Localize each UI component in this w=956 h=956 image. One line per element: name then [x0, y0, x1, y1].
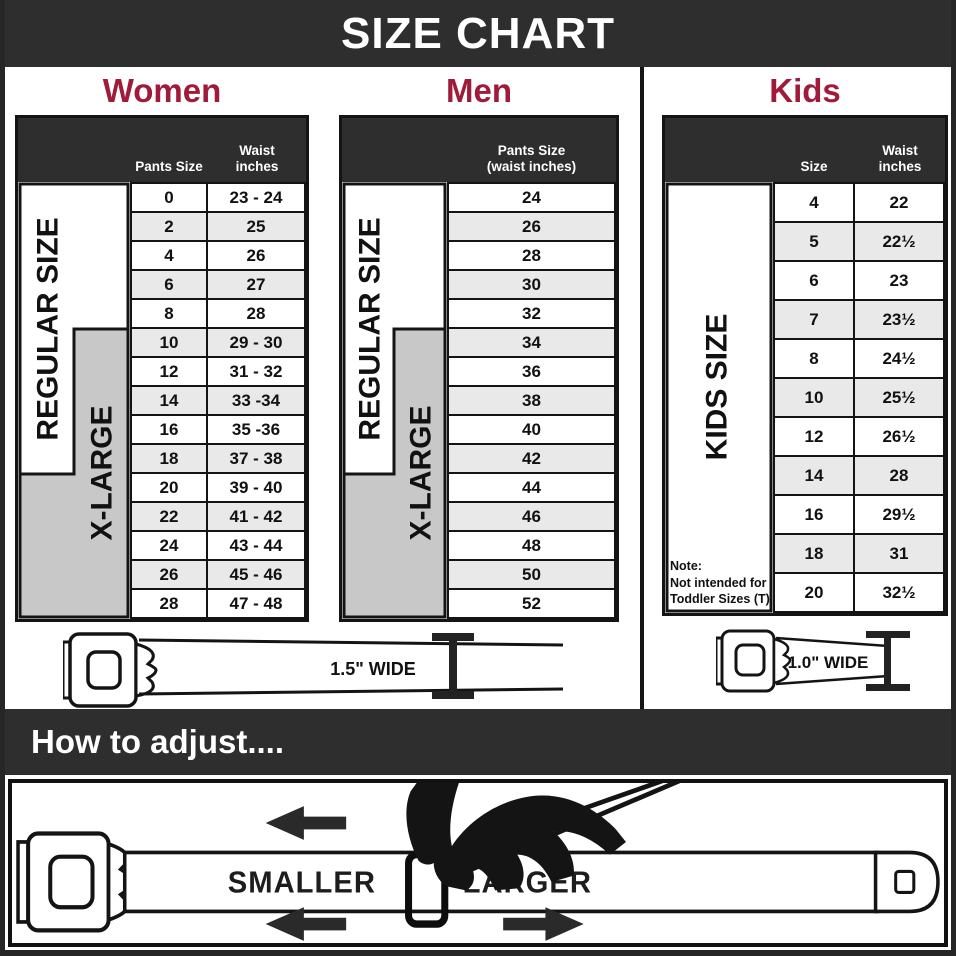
size-cell: 28: [130, 588, 208, 619]
waist-cell: 37 - 38: [206, 443, 306, 474]
women-fit-labels: REGULAR SIZE X-LARGE: [18, 182, 130, 619]
size-cell: 24: [130, 530, 208, 561]
table-row: 28: [447, 240, 616, 271]
size-cell: 16: [130, 414, 208, 445]
belt-buckle-icon: [18, 834, 131, 931]
waist-cell: 24½: [853, 338, 945, 379]
belt-width-label: 1.5" WIDE: [330, 659, 416, 679]
waist-cell: 25: [206, 211, 306, 242]
size-cell: 6: [773, 260, 855, 301]
size-cell: 2: [130, 211, 208, 242]
waist-cell: 22½: [853, 221, 945, 262]
smaller-label: SMALLER: [228, 866, 376, 900]
pants-size-cell: 52: [447, 588, 616, 619]
waist-cell: 25½: [853, 377, 945, 418]
x-large-label: X-LARGE: [86, 406, 119, 541]
waist-cell: 22: [853, 182, 945, 223]
waist-cell: 31: [853, 533, 945, 574]
regular-size-label: REGULAR SIZE: [32, 217, 65, 440]
waist-cell: 28: [206, 298, 306, 329]
size-cell: 26: [130, 559, 208, 590]
table-row: 38: [447, 385, 616, 416]
pants-size-cell: 32: [447, 298, 616, 329]
waist-cell: 29½: [853, 494, 945, 535]
table-row: 48: [447, 530, 616, 561]
size-cell: 18: [773, 533, 855, 574]
header-spacer: [665, 118, 773, 182]
table-row: 16 35 -36: [130, 414, 306, 445]
pants-size-cell: 42: [447, 443, 616, 474]
table-row: 6 27: [130, 269, 306, 300]
adjust-illustration: SMALLER LARGER: [12, 783, 944, 943]
pants-size-cell: 34: [447, 327, 616, 358]
size-cell: 7: [773, 299, 855, 340]
table-row: 7 23½: [773, 299, 945, 340]
note-line: Not intended for: [670, 575, 776, 591]
howto-heading: How to adjust....: [5, 709, 951, 775]
waist-cell: 32½: [853, 572, 945, 613]
waist-cell: 33 -34: [206, 385, 306, 416]
col-label: inches: [879, 159, 922, 175]
kids-title: Kids: [769, 72, 841, 110]
pants-size-cell: 46: [447, 501, 616, 532]
waist-cell: 26: [206, 240, 306, 271]
size-cell: 14: [130, 385, 208, 416]
waist-cell: 27: [206, 269, 306, 300]
x-large-label: X-LARGE: [405, 406, 438, 541]
size-cell: 6: [130, 269, 208, 300]
size-cell: 20: [130, 472, 208, 503]
kids-title-row: Kids: [662, 67, 948, 115]
size-cell: 4: [773, 182, 855, 223]
belt-buckle-icon: [716, 631, 790, 691]
kids-rows: 4 22 5 22½ 6 23 7 23½ 8: [773, 182, 945, 613]
table-row: 44: [447, 472, 616, 503]
table-row: 5 22½: [773, 221, 945, 262]
belt-width-label: 1.0" WIDE: [788, 653, 869, 672]
kids-section: Kids Size Waist inches K: [644, 67, 951, 709]
col-label: inches: [236, 159, 279, 175]
pants-size-cell: 50: [447, 559, 616, 590]
table-row: 18 31: [773, 533, 945, 574]
belt-tip-icon: [876, 852, 938, 911]
waist-cell: 23 - 24: [206, 182, 306, 213]
women-col-pants-size: Pants Size: [130, 118, 208, 182]
table-row: 10 29 - 30: [130, 327, 306, 358]
pants-size-cell: 48: [447, 530, 616, 561]
waist-cell: 28: [853, 455, 945, 496]
col-label: Waist: [882, 143, 918, 159]
table-row: 4 26: [130, 240, 306, 271]
table-row: 28 47 - 48: [130, 588, 306, 619]
size-cell: 22: [130, 501, 208, 532]
kids-fit-labels: KIDS SIZE: [665, 182, 773, 613]
adult-tables-row: Pants Size Waist inches REGULAR SIZE X-L: [15, 115, 640, 622]
col-label: Pants Size: [498, 143, 566, 159]
waist-cell: 29 - 30: [206, 327, 306, 358]
belt-strap-bottom-edge: [139, 689, 563, 694]
pants-size-cell: 40: [447, 414, 616, 445]
waist-cell: 31 - 32: [206, 356, 306, 387]
width-marker-icon: [866, 631, 910, 691]
men-size-table: Pants Size (waist inches) REGULAR SIZE X…: [339, 115, 619, 622]
regular-size-label: REGULAR SIZE: [354, 217, 387, 440]
size-cell: 10: [773, 377, 855, 418]
adult-section: Women Men Pants Size Waist inches: [5, 67, 640, 709]
table-row: 10 25½: [773, 377, 945, 418]
table-row: 20 39 - 40: [130, 472, 306, 503]
women-rows: 0 23 - 24 2 25 4 26 6 27: [130, 182, 306, 619]
adjust-illustration-box: SMALLER LARGER: [8, 779, 948, 947]
belt-strap-top-edge: [139, 640, 563, 645]
adult-belt-illustration: 1.5" WIDE: [63, 628, 583, 712]
page-title: SIZE CHART: [5, 0, 951, 67]
belt-strap-bottom-edge: [776, 676, 888, 684]
table-row: 14 28: [773, 455, 945, 496]
waist-cell: 23½: [853, 299, 945, 340]
pants-size-cell: 28: [447, 240, 616, 271]
table-row: 16 29½: [773, 494, 945, 535]
kids-table-body: KIDS SIZE Note: Not intended for Toddler…: [665, 182, 945, 613]
waist-cell: 43 - 44: [206, 530, 306, 561]
men-title: Men: [339, 72, 619, 110]
pants-size-cell: 26: [447, 211, 616, 242]
table-row: 18 37 - 38: [130, 443, 306, 474]
size-cell: 18: [130, 443, 208, 474]
table-row: 12 26½: [773, 416, 945, 457]
size-cell: 20: [773, 572, 855, 613]
table-row: 6 23: [773, 260, 945, 301]
size-cell: 8: [773, 338, 855, 379]
table-row: 36: [447, 356, 616, 387]
size-cell: 0: [130, 182, 208, 213]
pants-size-cell: 44: [447, 472, 616, 503]
women-table-body: REGULAR SIZE X-LARGE 0 23 - 24 2 25 4: [18, 182, 306, 619]
arrow-left-icon: [266, 806, 347, 840]
table-row: 52: [447, 588, 616, 619]
women-size-table: Pants Size Waist inches REGULAR SIZE X-L: [15, 115, 309, 622]
men-rows: 24 26 28 30 32 34: [447, 182, 616, 619]
men-table-header: Pants Size (waist inches): [342, 118, 616, 182]
table-row: 26: [447, 211, 616, 242]
col-label: (waist inches): [487, 159, 576, 175]
pants-size-cell: 24: [447, 182, 616, 213]
kids-belt-illustration: 1.0" WIDE: [716, 626, 951, 700]
men-col-pants-size: Pants Size (waist inches): [447, 118, 616, 182]
main-area: Women Men Pants Size Waist inches: [5, 67, 951, 709]
col-label: Pants Size: [135, 159, 203, 175]
waist-cell: 47 - 48: [206, 588, 306, 619]
waist-cell: 39 - 40: [206, 472, 306, 503]
waist-cell: 41 - 42: [206, 501, 306, 532]
kids-col-size: Size: [773, 118, 855, 182]
women-title: Women: [15, 72, 309, 110]
waist-cell: 45 - 46: [206, 559, 306, 590]
table-row: 4 22: [773, 182, 945, 223]
pants-size-cell: 38: [447, 385, 616, 416]
table-row: 26 45 - 46: [130, 559, 306, 590]
table-row: 22 41 - 42: [130, 501, 306, 532]
header-spacer: [18, 118, 130, 182]
women-col-waist: Waist inches: [208, 118, 306, 182]
table-row: 12 31 - 32: [130, 356, 306, 387]
note-line: Toddler Sizes (T): [670, 591, 776, 607]
table-row: 32: [447, 298, 616, 329]
table-row: 20 32½: [773, 572, 945, 613]
size-chart-page: SIZE CHART Women Men Pants Size Wa: [0, 0, 956, 956]
table-row: 24: [447, 182, 616, 213]
toddler-note: Note: Not intended for Toddler Sizes (T): [670, 558, 776, 607]
kids-size-table: Size Waist inches KIDS SIZE Note: Not in…: [662, 115, 948, 616]
table-row: 46: [447, 501, 616, 532]
col-label: Waist: [239, 143, 275, 159]
kids-size-label: KIDS SIZE: [701, 314, 734, 461]
table-row: 2 25: [130, 211, 306, 242]
size-cell: 8: [130, 298, 208, 329]
size-cell: 5: [773, 221, 855, 262]
kids-col-waist: Waist inches: [855, 118, 945, 182]
men-table-body: REGULAR SIZE X-LARGE 24 26 28 30: [342, 182, 616, 619]
kids-table-header: Size Waist inches: [665, 118, 945, 182]
size-cell: 12: [130, 356, 208, 387]
size-cell: 16: [773, 494, 855, 535]
table-row: 24 43 - 44: [130, 530, 306, 561]
table-row: 8 28: [130, 298, 306, 329]
size-cell: 14: [773, 455, 855, 496]
table-row: 0 23 - 24: [130, 182, 306, 213]
adult-titles-row: Women Men: [5, 67, 640, 115]
table-row: 50: [447, 559, 616, 590]
table-row: 34: [447, 327, 616, 358]
men-fit-labels: REGULAR SIZE X-LARGE: [342, 182, 447, 619]
waist-cell: 26½: [853, 416, 945, 457]
note-line: Note:: [670, 558, 776, 574]
table-row: 30: [447, 269, 616, 300]
table-row: 42: [447, 443, 616, 474]
belt-strap-top-edge: [776, 638, 888, 646]
size-cell: 4: [130, 240, 208, 271]
size-cell: 12: [773, 416, 855, 457]
pants-size-cell: 30: [447, 269, 616, 300]
pants-size-cell: 36: [447, 356, 616, 387]
col-label: Size: [800, 159, 827, 175]
table-row: 40: [447, 414, 616, 445]
header-spacer: [342, 118, 447, 182]
waist-cell: 23: [853, 260, 945, 301]
size-cell: 10: [130, 327, 208, 358]
waist-cell: 35 -36: [206, 414, 306, 445]
table-row: 14 33 -34: [130, 385, 306, 416]
table-row: 8 24½: [773, 338, 945, 379]
women-table-header: Pants Size Waist inches: [18, 118, 306, 182]
